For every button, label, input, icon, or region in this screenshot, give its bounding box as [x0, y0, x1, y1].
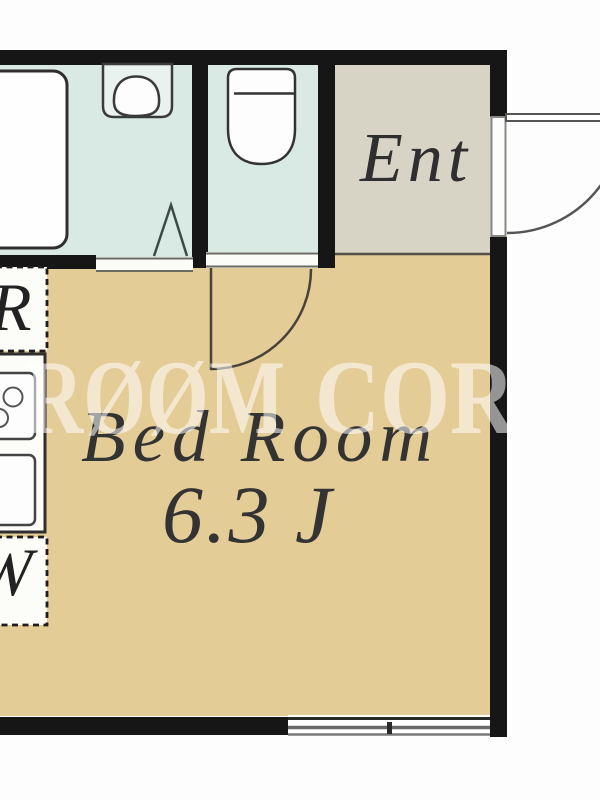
svg-text:COR: COR — [315, 339, 516, 456]
svg-text:RØØM: RØØM — [25, 339, 285, 456]
svg-text:6.3 J: 6.3 J — [162, 469, 335, 560]
svg-text:Ent: Ent — [359, 120, 472, 197]
svg-text:W: W — [0, 534, 38, 610]
svg-text:R: R — [0, 269, 32, 345]
